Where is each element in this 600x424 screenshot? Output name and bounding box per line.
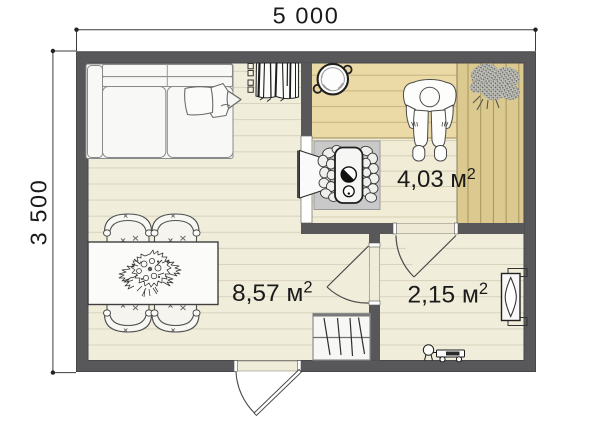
svg-text:4,03 м2: 4,03 м2: [397, 166, 476, 193]
svg-text:3 500: 3 500: [26, 179, 52, 246]
svg-text:5 000: 5 000: [273, 3, 340, 29]
svg-text:2,15 м2: 2,15 м2: [408, 280, 489, 309]
svg-text:8,57 м2: 8,57 м2: [232, 279, 313, 308]
